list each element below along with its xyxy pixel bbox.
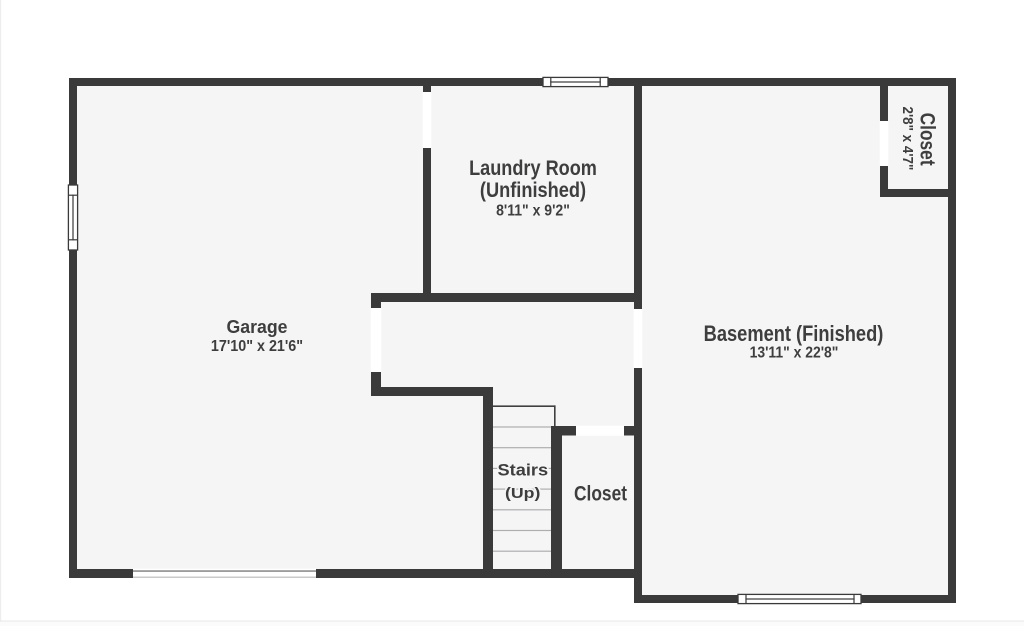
svg-text:Closet: Closet xyxy=(574,483,627,506)
svg-text:17'10" x 21'6": 17'10" x 21'6" xyxy=(211,338,303,355)
svg-text:(Up): (Up) xyxy=(505,485,540,502)
svg-text:13'11" x 22'8": 13'11" x 22'8" xyxy=(750,345,839,362)
svg-text:Basement (Finished): Basement (Finished) xyxy=(704,321,884,346)
svg-text:8'11" x 9'2": 8'11" x 9'2" xyxy=(496,203,570,220)
svg-text:2'8" x 4'7": 2'8" x 4'7" xyxy=(899,106,915,170)
svg-text:Closet: Closet xyxy=(916,113,939,166)
svg-text:Garage: Garage xyxy=(227,317,288,337)
svg-text:(Unfinished): (Unfinished) xyxy=(480,177,586,202)
svg-text:Stairs: Stairs xyxy=(498,461,549,480)
